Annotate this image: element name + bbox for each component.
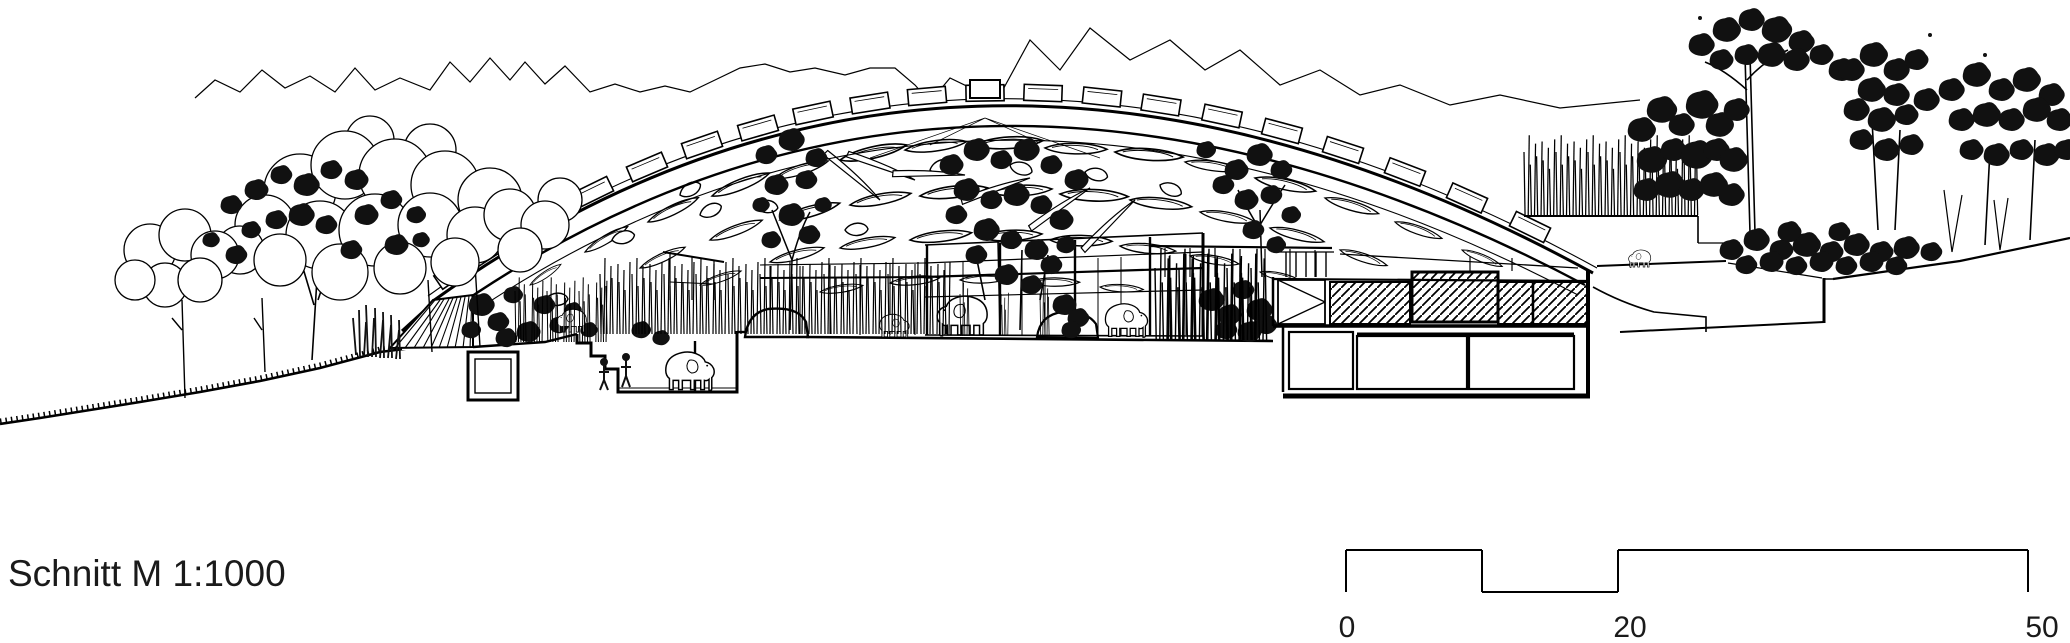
scale-label-50: 50: [2025, 611, 2058, 643]
hatched-slab-center: [1412, 272, 1498, 322]
right-foliage: [1628, 8, 2070, 275]
section-drawing-page: 0 20 50 Schnitt M 1:1000: [0, 0, 2070, 643]
scale-bar: 0 20 50: [1339, 550, 2059, 643]
architectural-section-drawing: 0 20 50 Schnitt M 1:1000: [0, 0, 2070, 643]
drawing-title: Schnitt M 1:1000: [8, 553, 286, 594]
scale-label-0: 0: [1339, 611, 1356, 643]
hatched-slab-left: [1330, 282, 1410, 324]
visitor-figures: [599, 354, 631, 390]
apex-rooflight-block: [970, 80, 1000, 98]
ground-slope-left: [0, 344, 473, 424]
annex-lower-rooms: [1289, 332, 1574, 389]
scale-label-20: 20: [1613, 611, 1646, 643]
hatched-slab-right: [1498, 282, 1588, 324]
section-marker-square: [1278, 280, 1325, 324]
elephant-in-pit: [666, 352, 714, 390]
right-tree-group: [1628, 8, 2070, 275]
